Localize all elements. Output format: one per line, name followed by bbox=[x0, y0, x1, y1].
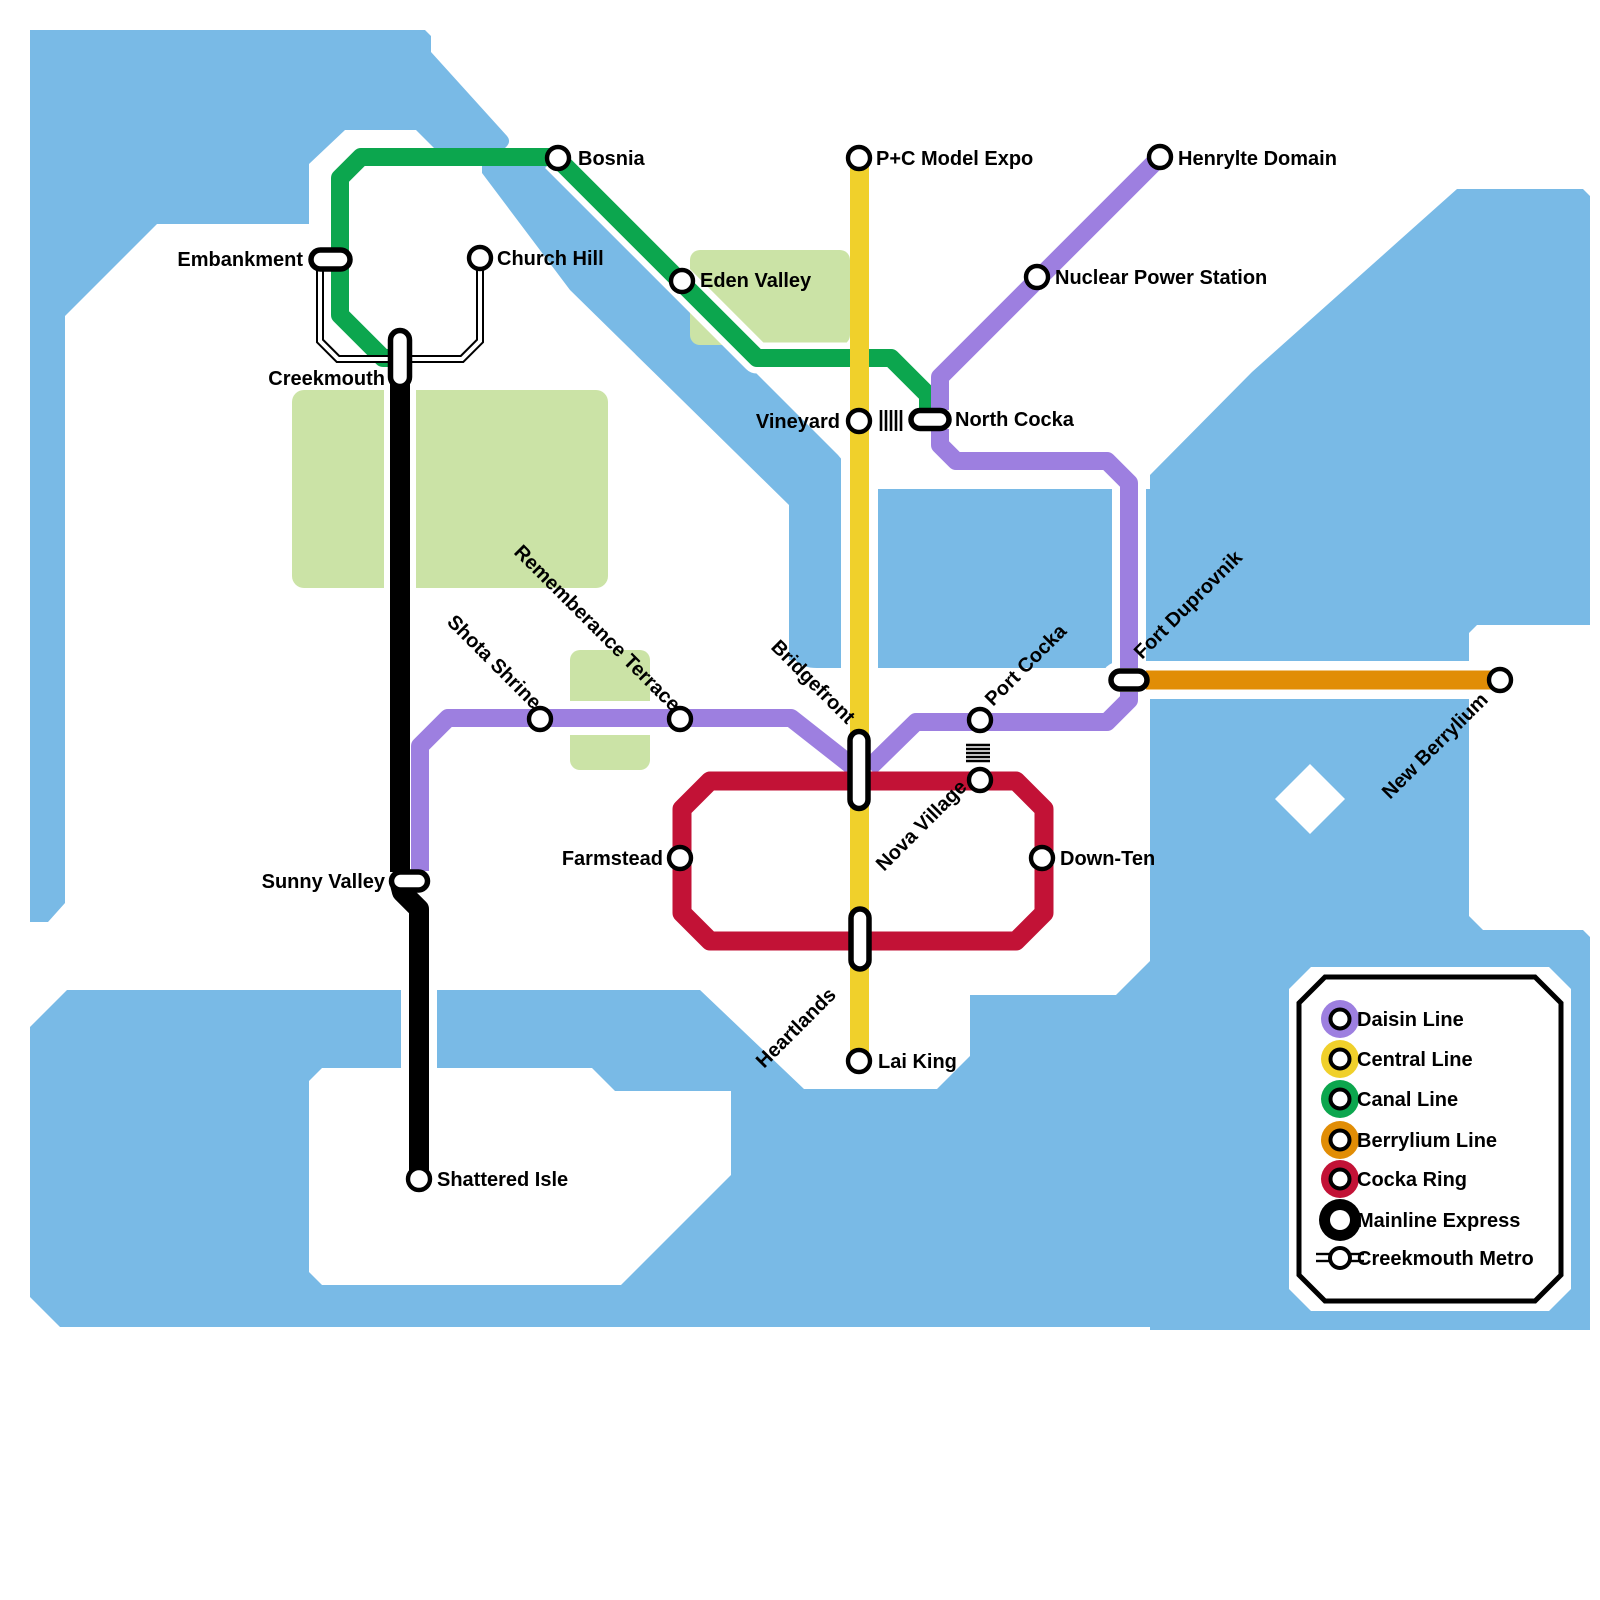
svg-text:Vineyard: Vineyard bbox=[756, 411, 840, 433]
svg-text:Down-Ten: Down-Ten bbox=[1060, 848, 1155, 870]
svg-text:Eden Valley: Eden Valley bbox=[700, 270, 812, 292]
svg-text:North Cocka: North Cocka bbox=[955, 409, 1075, 431]
svg-text:Creekmouth Metro: Creekmouth Metro bbox=[1357, 1248, 1534, 1270]
svg-text:P+C Model Expo: P+C Model Expo bbox=[876, 148, 1033, 170]
svg-text:Farmstead: Farmstead bbox=[562, 848, 663, 870]
svg-text:Church Hill: Church Hill bbox=[497, 248, 604, 270]
svg-text:Nuclear Power Station: Nuclear Power Station bbox=[1055, 267, 1267, 289]
svg-text:Berrylium Line: Berrylium Line bbox=[1357, 1130, 1497, 1152]
svg-text:Bosnia: Bosnia bbox=[578, 148, 646, 170]
svg-text:Mainline Express: Mainline Express bbox=[1357, 1210, 1520, 1232]
svg-text:Shattered Isle: Shattered Isle bbox=[437, 1169, 568, 1191]
svg-text:Henrylte Domain: Henrylte Domain bbox=[1178, 148, 1337, 170]
svg-text:Creekmouth: Creekmouth bbox=[268, 368, 385, 390]
svg-text:Embankment: Embankment bbox=[177, 249, 303, 271]
svg-text:Canal Line: Canal Line bbox=[1357, 1089, 1458, 1111]
svg-text:Central Line: Central Line bbox=[1357, 1049, 1473, 1071]
svg-text:Lai King: Lai King bbox=[878, 1051, 957, 1073]
svg-text:Cocka Ring: Cocka Ring bbox=[1357, 1169, 1467, 1191]
svg-text:Daisin Line: Daisin Line bbox=[1357, 1009, 1464, 1031]
svg-text:Sunny Valley: Sunny Valley bbox=[262, 871, 386, 893]
